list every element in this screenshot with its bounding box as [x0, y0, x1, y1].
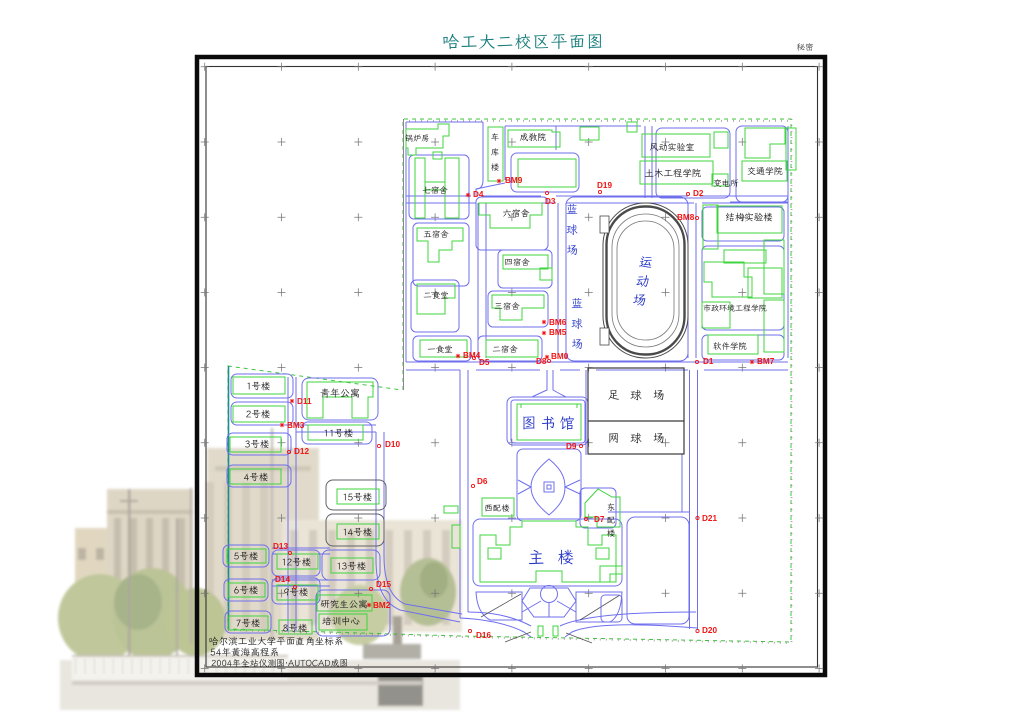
svg-text:BM0: BM0 [551, 352, 569, 361]
svg-text:D2: D2 [693, 189, 704, 198]
svg-text:D21: D21 [702, 514, 717, 523]
svg-text:D5: D5 [479, 358, 490, 367]
svg-text:BM4: BM4 [463, 351, 481, 360]
svg-text:D4: D4 [473, 190, 484, 199]
svg-text:D19: D19 [597, 181, 612, 190]
svg-text:D12: D12 [294, 447, 309, 456]
svg-text:BM8: BM8 [677, 213, 695, 222]
svg-text:D14: D14 [275, 575, 290, 584]
svg-text:D20: D20 [702, 626, 717, 635]
svg-text:D1: D1 [703, 357, 714, 366]
svg-text:D13: D13 [273, 542, 288, 551]
svg-text:D11: D11 [297, 397, 312, 406]
svg-text:BM2: BM2 [373, 601, 391, 610]
svg-text:D9: D9 [566, 442, 577, 451]
svg-text:D10: D10 [385, 440, 400, 449]
svg-text:BM9: BM9 [505, 176, 523, 185]
svg-text:D15: D15 [376, 580, 391, 589]
svg-text:D7: D7 [594, 515, 605, 524]
svg-text:BM6: BM6 [549, 318, 567, 327]
svg-text:BM5: BM5 [549, 328, 567, 337]
svg-text:D6: D6 [477, 477, 488, 486]
svg-text:BM7: BM7 [757, 357, 775, 366]
svg-text:BM3: BM3 [287, 421, 305, 430]
svg-text:D3: D3 [545, 197, 556, 206]
svg-text:D16: D16 [476, 631, 491, 640]
